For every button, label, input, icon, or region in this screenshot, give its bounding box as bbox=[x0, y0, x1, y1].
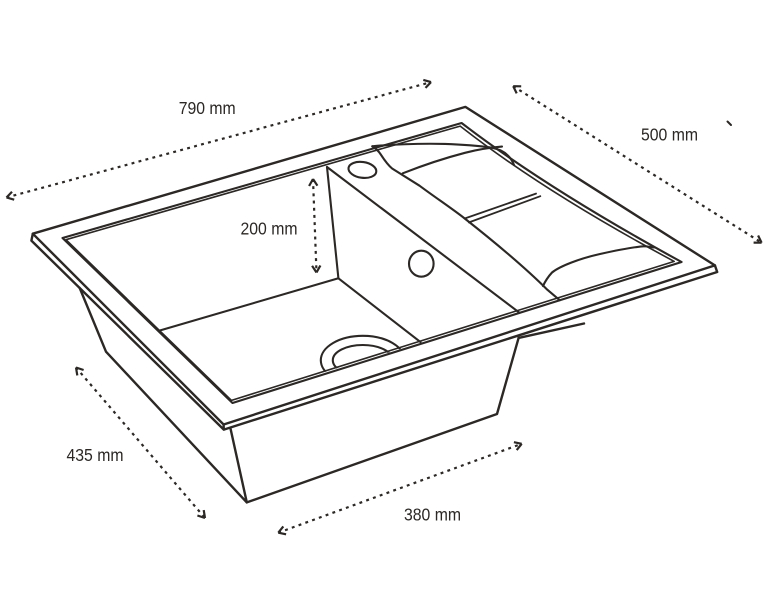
svg-text:200 mm: 200 mm bbox=[241, 219, 298, 239]
svg-text:500 mm: 500 mm bbox=[641, 125, 698, 145]
svg-text:380 mm: 380 mm bbox=[404, 505, 461, 525]
svg-text:435 mm: 435 mm bbox=[67, 445, 124, 465]
svg-text:790 mm: 790 mm bbox=[179, 98, 236, 118]
